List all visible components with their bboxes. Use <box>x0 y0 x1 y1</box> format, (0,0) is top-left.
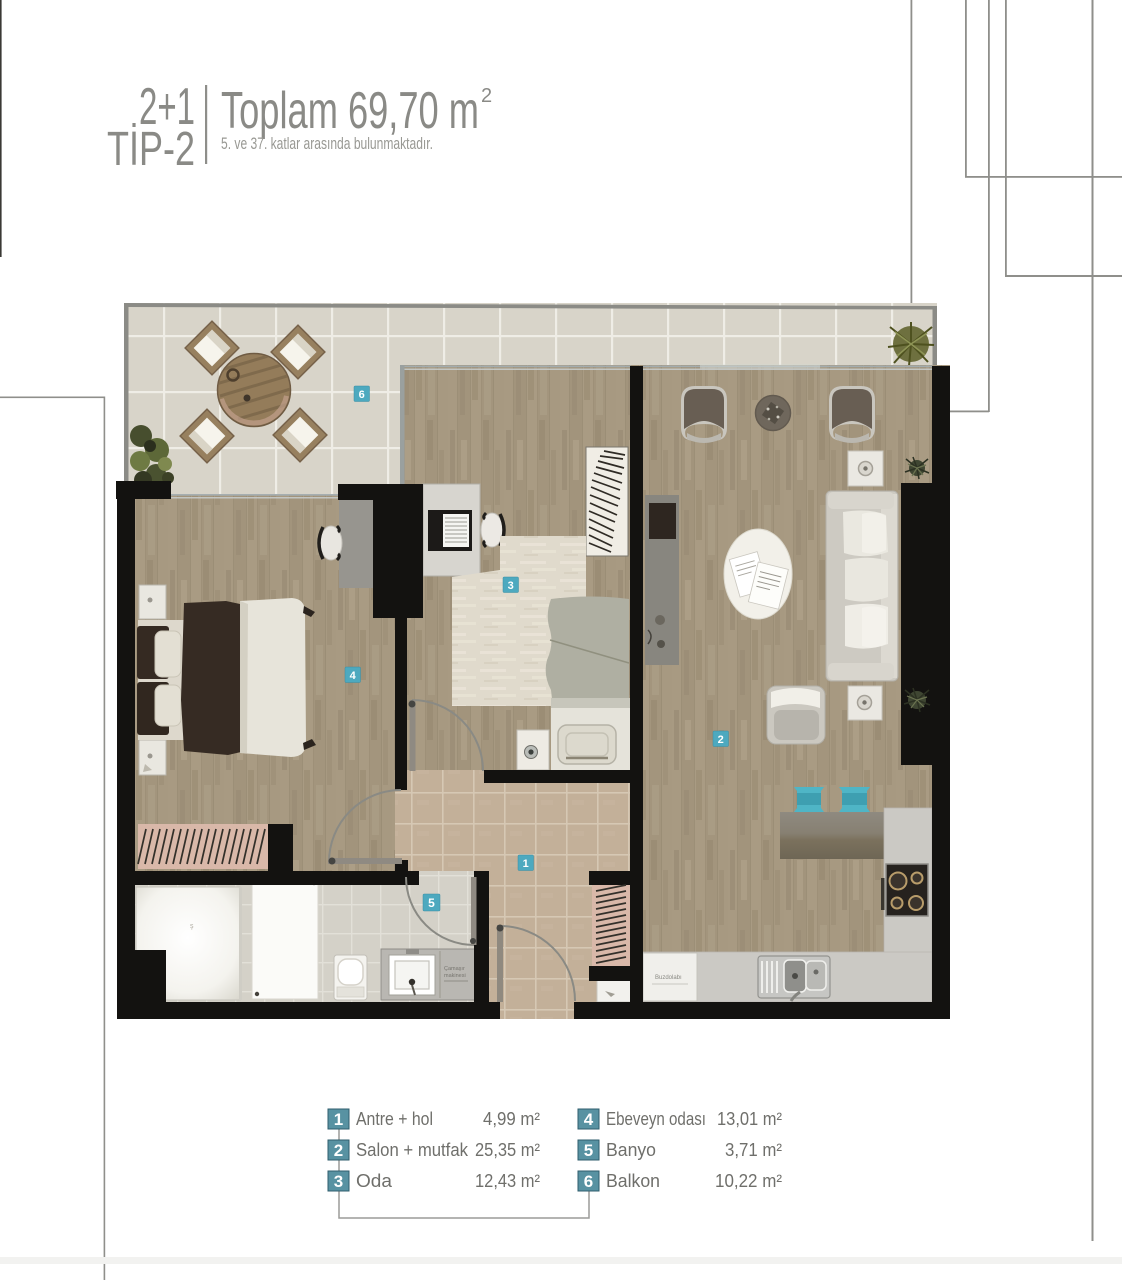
svg-text:ş: ş <box>190 923 194 930</box>
svg-text:Ebeveyn odası: Ebeveyn odası <box>606 1109 706 1129</box>
svg-text:5: 5 <box>584 1141 593 1160</box>
svg-text:3,71 m²: 3,71 m² <box>725 1140 782 1160</box>
svg-text:5. ve 37. katlar arasında bulu: 5. ve 37. katlar arasında bulunmaktadır. <box>221 135 433 153</box>
svg-text:Oda: Oda <box>356 1171 393 1191</box>
svg-text:2: 2 <box>481 85 492 107</box>
svg-text:Buzdolabı: Buzdolabı <box>655 975 682 981</box>
svg-text:makinesi: makinesi <box>444 973 466 979</box>
svg-text:4: 4 <box>584 1110 594 1129</box>
svg-text:5: 5 <box>428 896 435 910</box>
svg-text:1: 1 <box>523 858 529 870</box>
svg-text:6: 6 <box>359 389 365 401</box>
svg-text:6: 6 <box>584 1172 593 1191</box>
svg-text:Antre + hol: Antre + hol <box>356 1109 433 1129</box>
svg-text:TİP-2: TİP-2 <box>107 123 195 176</box>
svg-text:4,99 m²: 4,99 m² <box>483 1109 540 1129</box>
svg-text:13,01 m²: 13,01 m² <box>717 1109 782 1129</box>
svg-text:Toplam 69,70 m: Toplam 69,70 m <box>221 82 479 140</box>
svg-text:12,43 m²: 12,43 m² <box>475 1171 540 1191</box>
svg-text:Banyo: Banyo <box>606 1140 656 1160</box>
svg-text:2: 2 <box>334 1141 343 1160</box>
svg-text:Çamaşır: Çamaşır <box>444 966 465 972</box>
svg-text:Balkon: Balkon <box>606 1171 660 1191</box>
svg-text:1: 1 <box>334 1110 343 1129</box>
svg-text:3: 3 <box>334 1172 343 1191</box>
svg-text:2: 2 <box>718 734 724 746</box>
svg-text:25,35 m²: 25,35 m² <box>475 1140 540 1160</box>
svg-text:3: 3 <box>508 580 514 592</box>
svg-text:Salon + mutfak: Salon + mutfak <box>356 1140 469 1160</box>
svg-text:4: 4 <box>350 670 357 682</box>
svg-text:10,22 m²: 10,22 m² <box>715 1171 782 1191</box>
